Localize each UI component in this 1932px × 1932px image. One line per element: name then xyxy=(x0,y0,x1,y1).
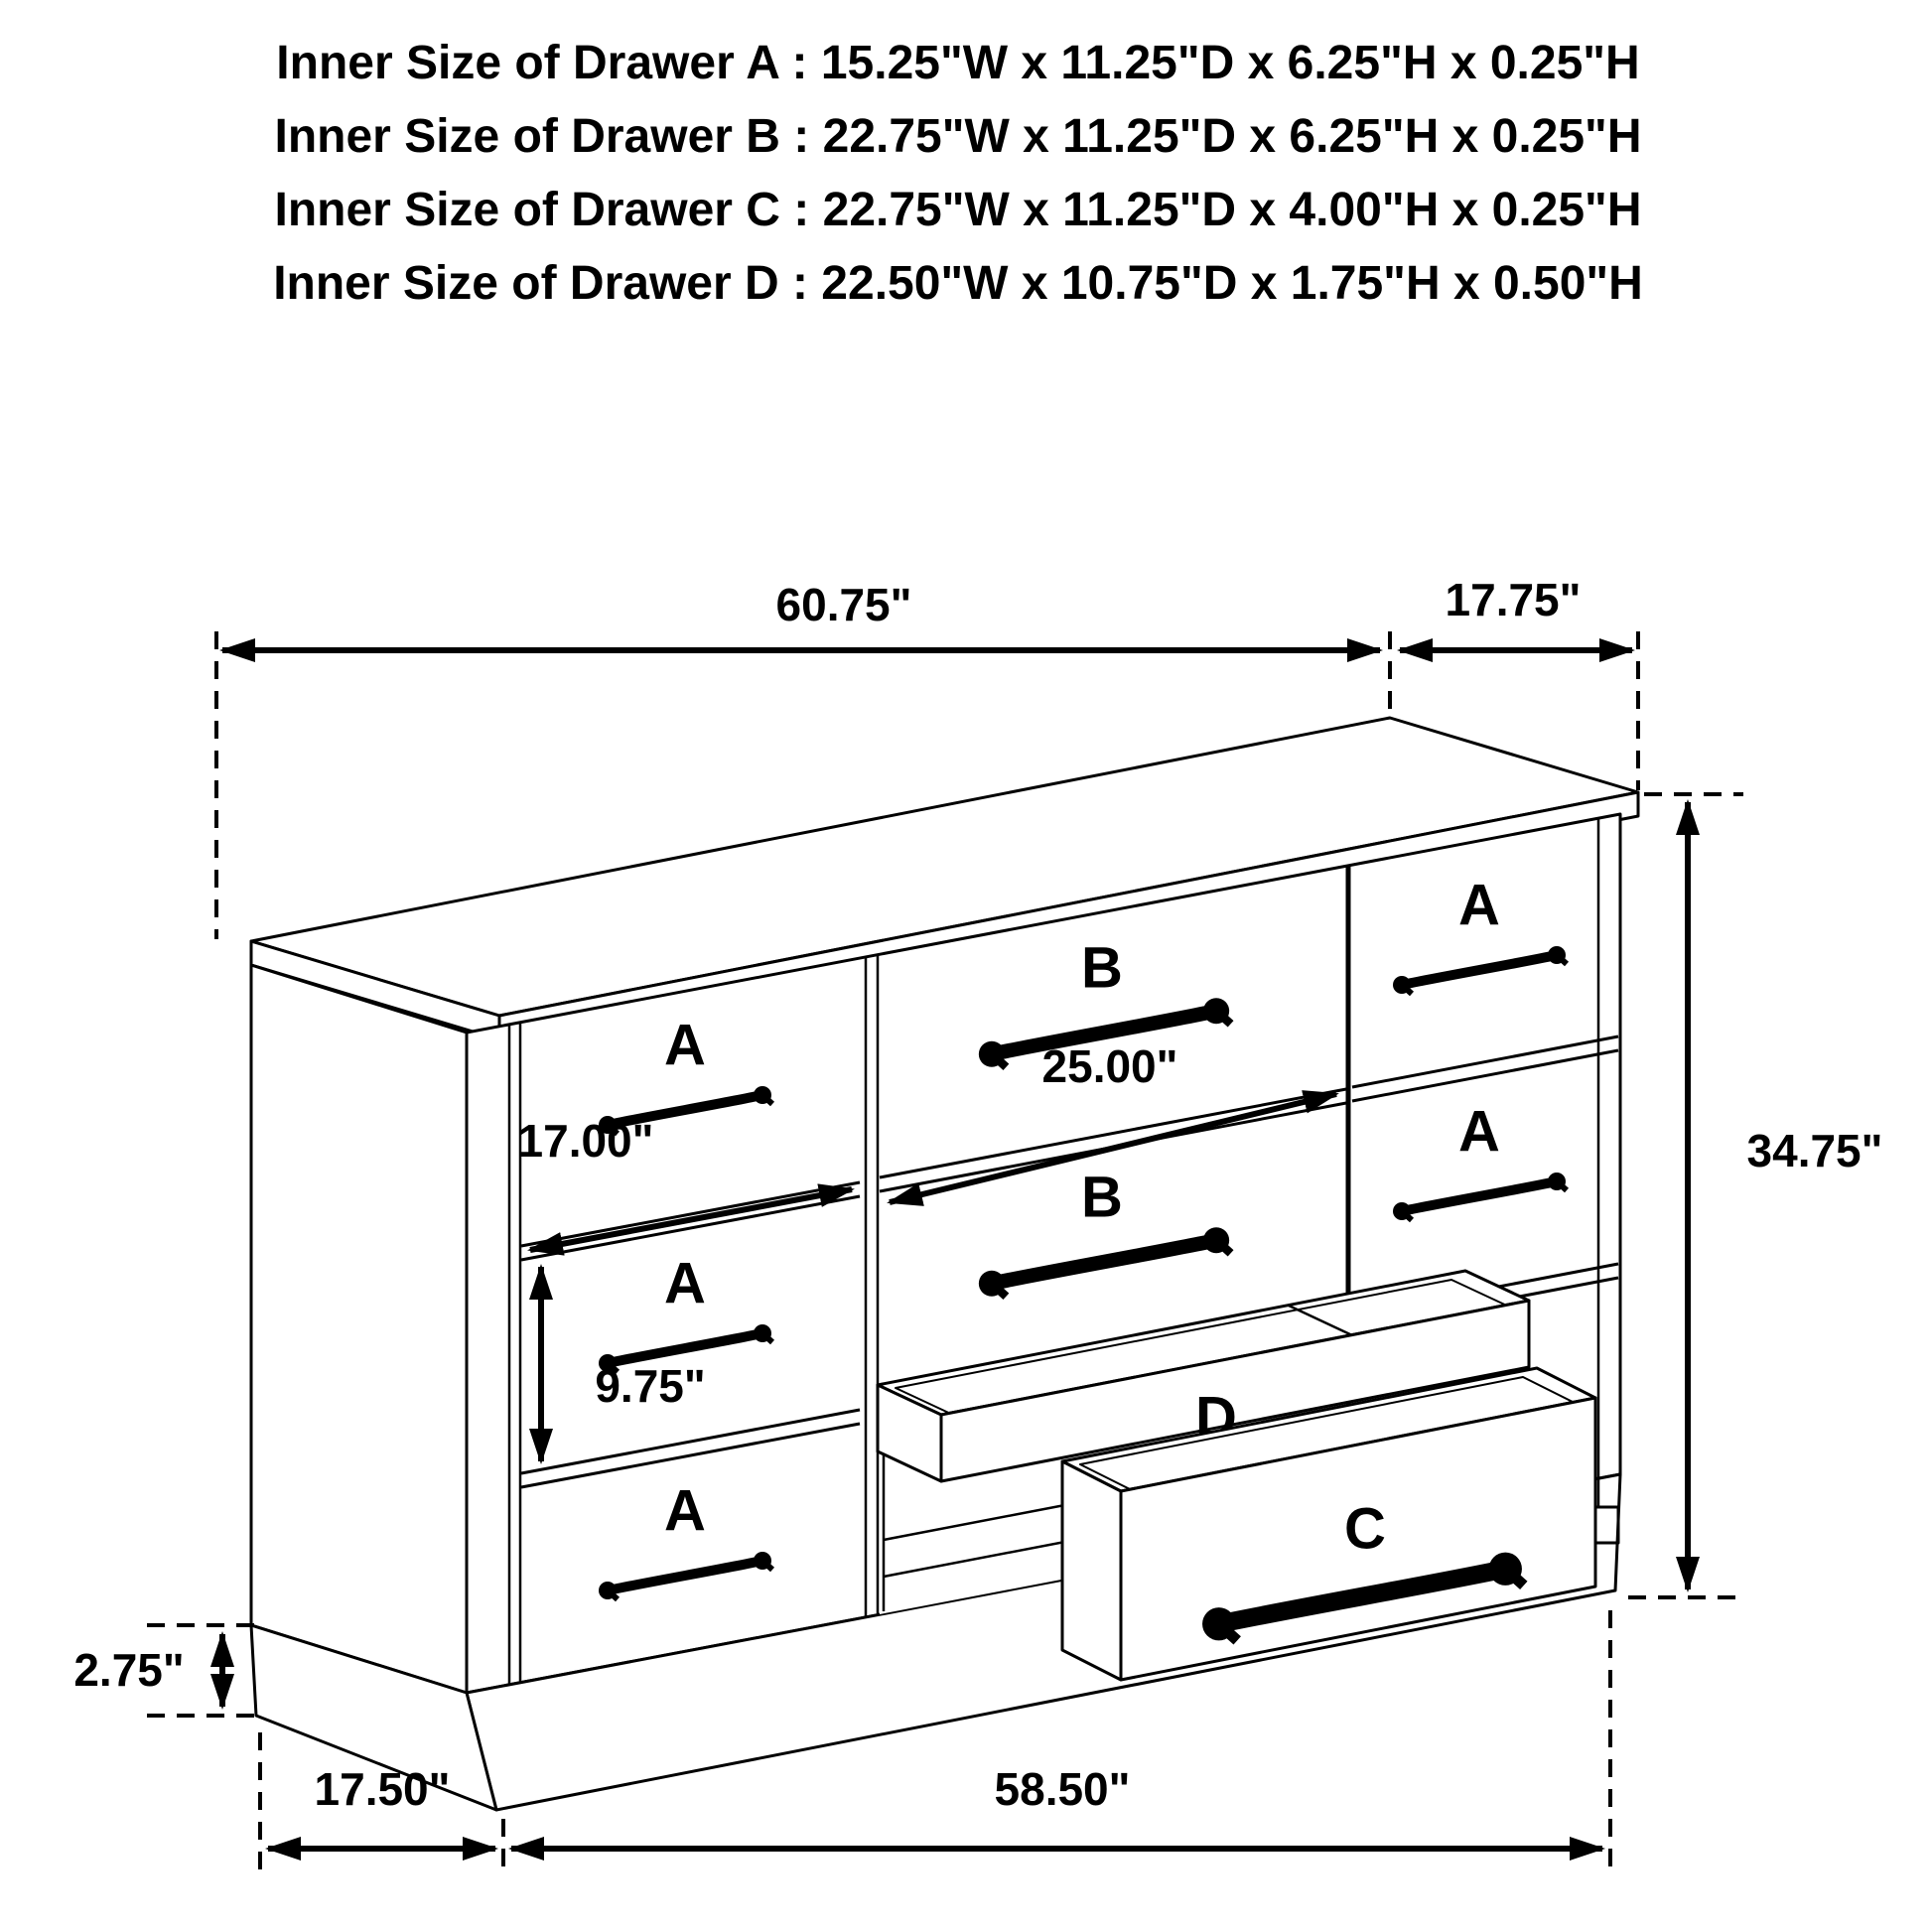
spec-line-drawer-a: Inner Size of Drawer A : 15.25"W x 11.25… xyxy=(276,37,1639,89)
dim-label-base-depth: 17.50" xyxy=(315,1763,451,1815)
dim-label-height: 34.75" xyxy=(1747,1125,1883,1176)
dim-label-base-width: 58.50" xyxy=(995,1763,1131,1815)
dim-label-top-width: 60.75" xyxy=(776,579,912,630)
spec-line-drawer-b: Inner Size of Drawer B : 22.75"W x 11.25… xyxy=(275,110,1642,163)
drawer-b1-label: B xyxy=(1081,936,1123,1001)
dim-label-top-depth: 17.75" xyxy=(1446,574,1582,625)
right-dimension: 34.75" xyxy=(1628,794,1882,1597)
drawer-a2-label: A xyxy=(664,1252,706,1316)
dim-label-drawer-a-width: 17.00" xyxy=(518,1115,654,1167)
dim-label-drawer-b-width: 25.00" xyxy=(1042,1040,1178,1092)
dim-label-drawer-a-height: 9.75" xyxy=(595,1360,705,1412)
header-spec-block: Inner Size of Drawer A : 15.25"W x 11.25… xyxy=(273,37,1643,310)
cabinet-side-panel xyxy=(251,965,467,1693)
spec-line-drawer-d: Inner Size of Drawer D : 22.50"W x 10.75… xyxy=(273,257,1643,310)
drawer-b2-label: B xyxy=(1081,1166,1123,1230)
dresser-body: A A A B B A A A D xyxy=(251,718,1638,1810)
drawer-a3-label: A xyxy=(664,1479,706,1544)
drawer-c-label: C xyxy=(1344,1497,1386,1562)
dresser-dimension-diagram: Inner Size of Drawer A : 15.25"W x 11.25… xyxy=(0,0,1932,1932)
drawer-c-side xyxy=(1062,1461,1121,1680)
dim-label-base-height: 2.75" xyxy=(73,1644,184,1696)
drawer-a5-label: A xyxy=(1458,1100,1500,1165)
drawer-a1-label: A xyxy=(664,1014,706,1078)
diagram-page: Inner Size of Drawer A : 15.25"W x 11.25… xyxy=(0,0,1932,1932)
drawer-a4-label: A xyxy=(1458,874,1500,938)
spec-line-drawer-c: Inner Size of Drawer C : 22.75"W x 11.25… xyxy=(275,184,1642,236)
